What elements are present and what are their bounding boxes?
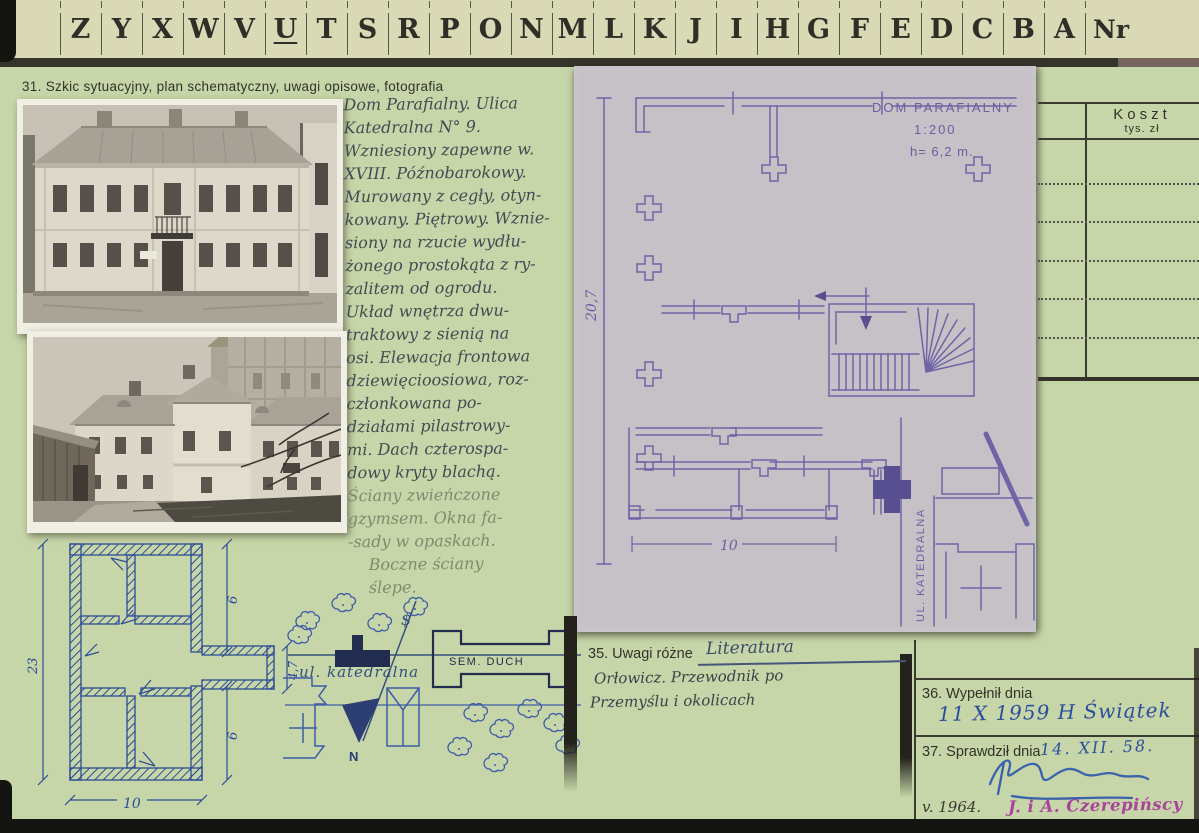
index-letter: R	[388, 0, 429, 58]
plan-dim-right-upper: 6	[226, 596, 241, 604]
note-line: Murowany z cegły, otyn-	[344, 183, 582, 208]
section35-underline	[698, 660, 906, 666]
index-letter: I	[716, 0, 757, 58]
index-letter: O	[470, 0, 511, 58]
section37-stamp: J. i A. Czerepińscy	[1008, 794, 1183, 816]
index-letter: W	[183, 0, 224, 58]
map-north-arrowhead	[342, 698, 380, 743]
letter-index: Z Y X W V U T S R P O N M L K J I H G F …	[60, 0, 1151, 58]
top-rule-smudge	[1118, 58, 1199, 67]
index-letter: F	[839, 0, 880, 58]
photo-rear-view	[27, 331, 347, 533]
koszt-rule-header	[1038, 138, 1199, 140]
koszt-row-line	[1038, 183, 1199, 185]
note-line: żonego prostokąta z ry-	[345, 252, 583, 277]
koszt-row-line	[1038, 260, 1199, 262]
index-letter: K	[634, 0, 675, 58]
map-north-label: N	[349, 749, 358, 764]
plan-dim-left: 23	[26, 657, 41, 675]
index-letter: N	[511, 0, 552, 58]
section37-year-note: v. 1964.	[922, 798, 981, 816]
index-letter-underlined: U	[265, 0, 306, 58]
index-letter: E	[880, 0, 921, 58]
section35-literatura: Literatura	[706, 637, 794, 659]
scan-shadow-strip	[564, 616, 577, 792]
photo-rear-view-image	[33, 337, 341, 522]
index-nr-label: Nr	[1085, 0, 1151, 58]
note-line: Dom Parafialny. Ulica	[343, 91, 581, 116]
koszt-row-line	[1038, 221, 1199, 223]
handwritten-description: Dom Parafialny. Ulica Katedralna N° 9. W…	[343, 91, 586, 599]
index-letter: X	[142, 0, 183, 58]
section35-label: 35. Uwagi różne	[588, 646, 693, 662]
note-line-pencil: Boczne ściany	[348, 551, 586, 576]
section36-label: 36. Wypełnił dnia	[922, 686, 1032, 702]
map-parish-house-footprint	[335, 635, 390, 667]
blueprint-street-label: UL. KATEDRALNA	[915, 508, 927, 622]
note-line: siony na rzucie wydłu-	[345, 229, 583, 254]
note-line: członkowana po-	[346, 390, 584, 415]
section35-note-line1: Orłowicz. Przewodnik po	[594, 666, 784, 687]
section36-divider	[914, 640, 916, 819]
index-letter: C	[962, 0, 1003, 58]
koszt-title: Koszt	[1087, 106, 1197, 123]
section35-note-line2: Przemyślu i okolicach	[590, 691, 756, 712]
map-seminary-label: SEM. DUCH	[449, 656, 524, 668]
blueprint-dim-bottom: 10	[720, 538, 738, 554]
koszt-rule-bottom	[1038, 377, 1199, 381]
index-letter: J	[675, 0, 716, 58]
section36-rule	[915, 678, 1199, 680]
note-line: dziewięcioosiowa, roz-	[346, 367, 584, 392]
note-line: kowany. Piętrowy. Wznie-	[345, 206, 583, 231]
index-letter: D	[921, 0, 962, 58]
index-letter: B	[1003, 0, 1044, 58]
note-line: mi. Dach czterospa-	[347, 436, 585, 461]
koszt-row-line	[1038, 337, 1199, 339]
note-line: XVIII. Późnobarokowy.	[344, 160, 582, 185]
nr-text: Nr	[1093, 15, 1129, 44]
scan-edge-bottom	[0, 819, 1199, 833]
note-line: dowy kryty blachą.	[347, 459, 585, 484]
blueprint-scale: 1:200	[914, 122, 957, 137]
scan-edge-right	[1194, 648, 1199, 819]
scan-shadow-strip	[900, 654, 912, 798]
note-line-pencil: -sady w opaskach.	[348, 528, 586, 553]
index-letter: A	[1044, 0, 1085, 58]
blueprint-height-note: h= 6,2 m.	[910, 144, 974, 159]
plan-dim-right-lower: 6	[226, 732, 241, 740]
index-letter: T	[306, 0, 347, 58]
note-line: Wzniesiony zapewne w.	[344, 137, 582, 162]
koszt-rule-top	[1038, 102, 1199, 104]
blueprint-title: DOM PARAFIALNY	[872, 100, 1014, 115]
note-line: osi. Elewacja frontowa	[346, 344, 584, 369]
note-line: zalitem od ogrodu.	[345, 275, 583, 300]
photo-front-facade	[17, 99, 343, 334]
note-line-pencil: gzymsem. Okna fa-	[348, 505, 586, 530]
blueprint-plan: DOM PARAFIALNY 1:200 h= 6,2 m. 20,7 10 U…	[574, 66, 1036, 632]
index-letter: L	[593, 0, 634, 58]
note-line: traktowy z sienią na	[346, 321, 584, 346]
photo-front-facade-image	[23, 105, 337, 323]
situation-map-sketch: ul. katedralna SEM. DUCH $ N	[283, 593, 583, 803]
archival-card: Z Y X W V U T S R P O N M L K J I H G F …	[0, 0, 1199, 833]
index-letter: G	[798, 0, 839, 58]
index-letter: Z	[60, 0, 101, 58]
section36-handwritten-value: 11 X 1959 H Świątek	[938, 698, 1172, 726]
note-line-pencil: Ściany zwieńczone	[347, 482, 585, 507]
blueprint-dim-vertical: 20,7	[584, 290, 600, 322]
floorplan-sketch: 23 6 4,7 6 10	[15, 528, 300, 820]
index-letter: V	[224, 0, 265, 58]
note-line: Katedralna N° 9.	[344, 114, 582, 139]
plan-dim-bottom: 10	[123, 796, 141, 812]
scan-edge-top-left	[0, 0, 16, 62]
koszt-unit: tys. zł	[1087, 123, 1197, 135]
index-letter: S	[347, 0, 388, 58]
section31-label: 31. Szkic sytuacyjny, plan schematyczny,…	[22, 79, 444, 94]
index-letter: M	[552, 0, 593, 58]
note-line: działami pilastrowy-	[347, 413, 585, 438]
note-line: Układ wnętrza dwu-	[346, 298, 584, 323]
index-letter: Y	[101, 0, 142, 58]
index-letter: P	[429, 0, 470, 58]
index-letter: H	[757, 0, 798, 58]
koszt-row-line	[1038, 298, 1199, 300]
section37-rule	[915, 735, 1199, 737]
